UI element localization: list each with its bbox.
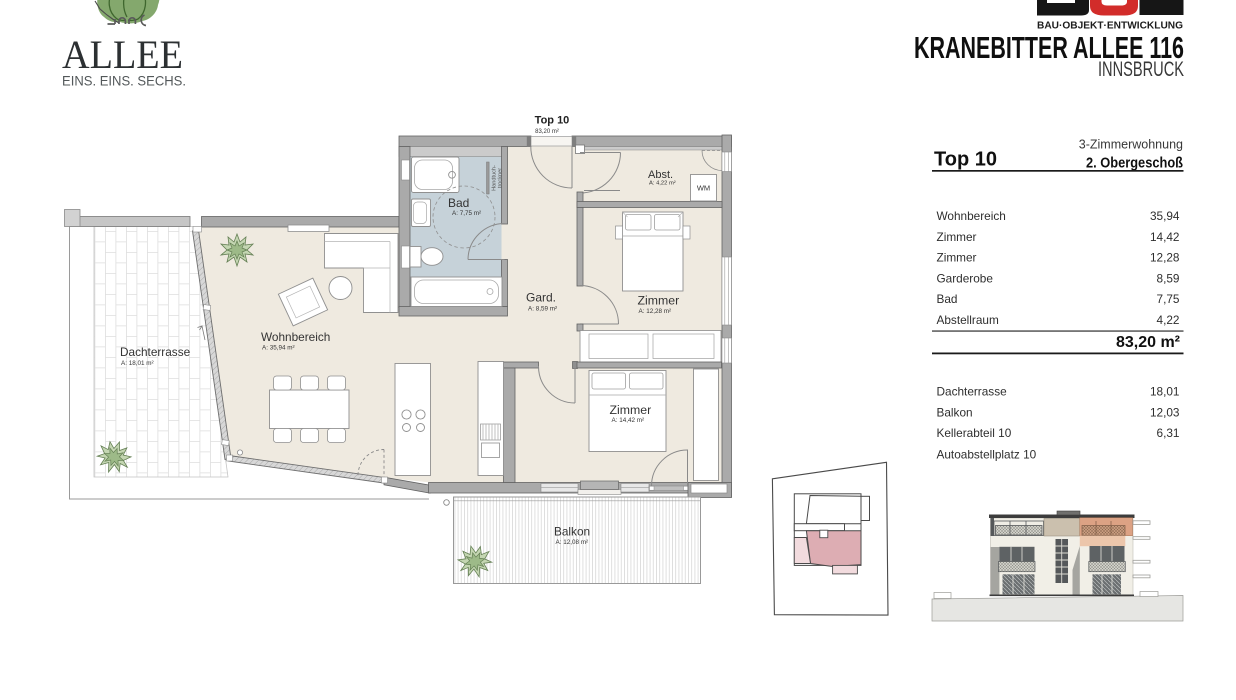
svg-text:7,75: 7,75 bbox=[1157, 292, 1180, 306]
svg-text:8,59: 8,59 bbox=[1157, 271, 1180, 285]
svg-text:Zimmer: Zimmer bbox=[610, 403, 652, 417]
svg-text:A: 12,28 m²: A: 12,28 m² bbox=[639, 308, 672, 315]
svg-text:3-Zimmerwohnung: 3-Zimmerwohnung bbox=[1079, 138, 1183, 152]
svg-text:Balkon: Balkon bbox=[937, 405, 973, 419]
svg-text:Wohnbereich: Wohnbereich bbox=[261, 330, 330, 344]
svg-text:Bad: Bad bbox=[937, 292, 958, 306]
svg-text:35,94: 35,94 bbox=[1150, 209, 1180, 223]
svg-text:Abst.: Abst. bbox=[648, 169, 673, 181]
svg-text:83,20 m²: 83,20 m² bbox=[1116, 334, 1180, 351]
svg-text:Top 10: Top 10 bbox=[535, 115, 570, 127]
svg-text:A: 12,08 m²: A: 12,08 m² bbox=[556, 539, 589, 546]
svg-text:trockner: trockner bbox=[498, 168, 504, 188]
svg-text:Top 10: Top 10 bbox=[934, 149, 997, 171]
svg-text:14,42: 14,42 bbox=[1150, 230, 1180, 244]
svg-text:Garderobe: Garderobe bbox=[937, 271, 994, 285]
svg-text:Balkon: Balkon bbox=[554, 525, 590, 539]
svg-text:Dachterrasse: Dachterrasse bbox=[937, 385, 1008, 399]
svg-text:Zimmer: Zimmer bbox=[937, 230, 977, 244]
svg-text:12,28: 12,28 bbox=[1150, 251, 1180, 265]
svg-text:83,20 m²: 83,20 m² bbox=[535, 129, 559, 135]
svg-text:Gard.: Gard. bbox=[526, 291, 556, 305]
svg-text:A: 35,94 m²: A: 35,94 m² bbox=[262, 345, 295, 352]
svg-text:Abstellraum: Abstellraum bbox=[937, 313, 999, 327]
svg-text:Dachterrasse: Dachterrasse bbox=[120, 345, 191, 359]
svg-text:Autoabstellplatz 10: Autoabstellplatz 10 bbox=[937, 448, 1037, 462]
svg-text:Bad: Bad bbox=[448, 196, 469, 210]
svg-text:EINS. EINS. SECHS.: EINS. EINS. SECHS. bbox=[62, 74, 186, 89]
svg-text:6,31: 6,31 bbox=[1157, 426, 1180, 440]
svg-text:4,22: 4,22 bbox=[1157, 313, 1180, 327]
svg-text:Kellerabteil 10: Kellerabteil 10 bbox=[937, 426, 1012, 440]
svg-text:A: 7,75 m²: A: 7,75 m² bbox=[452, 210, 481, 217]
svg-text:A: 4,22 m²: A: 4,22 m² bbox=[649, 181, 676, 187]
svg-text:A: 18,01 m²: A: 18,01 m² bbox=[121, 360, 154, 367]
svg-text:Wohnbereich: Wohnbereich bbox=[937, 209, 1006, 223]
svg-text:INNSBRUCK: INNSBRUCK bbox=[1098, 58, 1184, 81]
svg-text:WM: WM bbox=[697, 184, 710, 193]
svg-text:18,01: 18,01 bbox=[1150, 385, 1180, 399]
svg-text:Zimmer: Zimmer bbox=[638, 294, 680, 308]
svg-text:A: 8,59 m²: A: 8,59 m² bbox=[528, 306, 557, 313]
svg-text:Zimmer: Zimmer bbox=[937, 251, 977, 265]
svg-text:12,03: 12,03 bbox=[1150, 405, 1180, 419]
svg-text:A: 14,42 m²: A: 14,42 m² bbox=[612, 417, 645, 424]
svg-text:ALLEE: ALLEE bbox=[62, 32, 183, 77]
svg-text:2. Obergeschoß: 2. Obergeschoß bbox=[1086, 156, 1183, 172]
